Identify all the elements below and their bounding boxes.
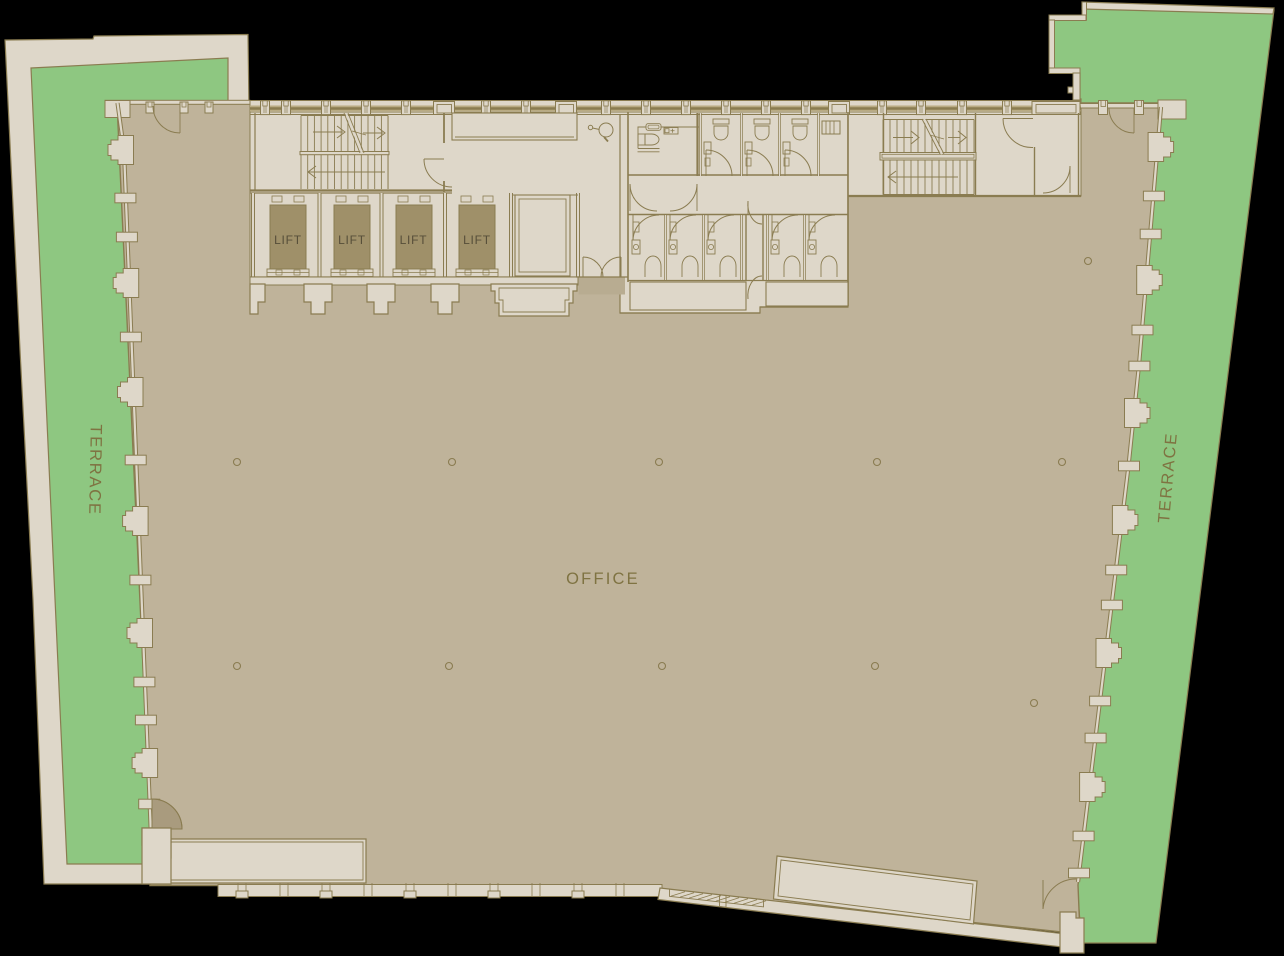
svg-text:LIFT: LIFT	[338, 233, 366, 247]
svg-text:LIFT: LIFT	[400, 233, 428, 247]
svg-text:OFFICE: OFFICE	[566, 570, 640, 588]
svg-text:TERRACE: TERRACE	[85, 424, 105, 516]
svg-text:LIFT: LIFT	[274, 233, 302, 247]
svg-text:LIFT: LIFT	[463, 233, 491, 247]
